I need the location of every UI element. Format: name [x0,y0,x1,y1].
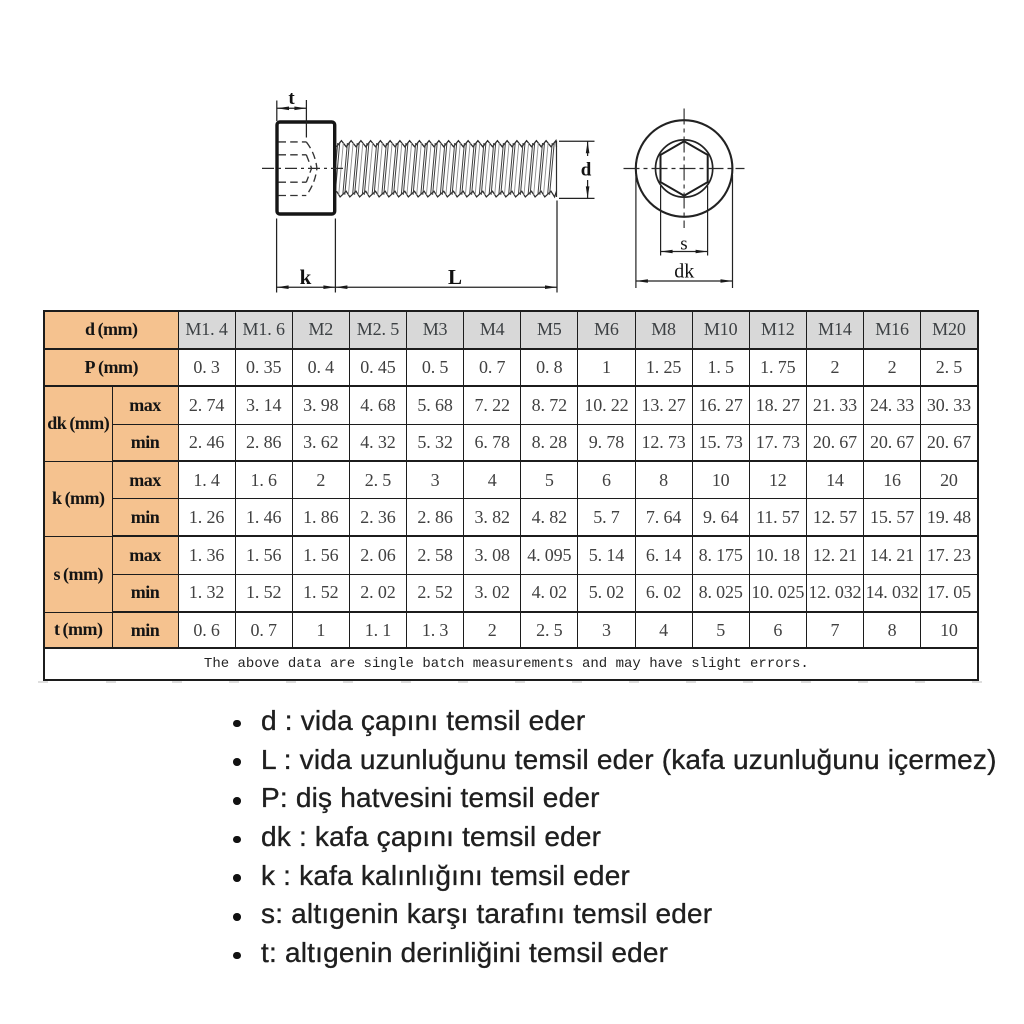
svg-text:dk: dk [674,261,694,283]
svg-text:k: k [300,265,312,289]
svg-text:t: t [288,88,295,109]
svg-text:s: s [680,234,687,255]
svg-text:L: L [448,265,462,289]
svg-text:d: d [581,160,592,181]
